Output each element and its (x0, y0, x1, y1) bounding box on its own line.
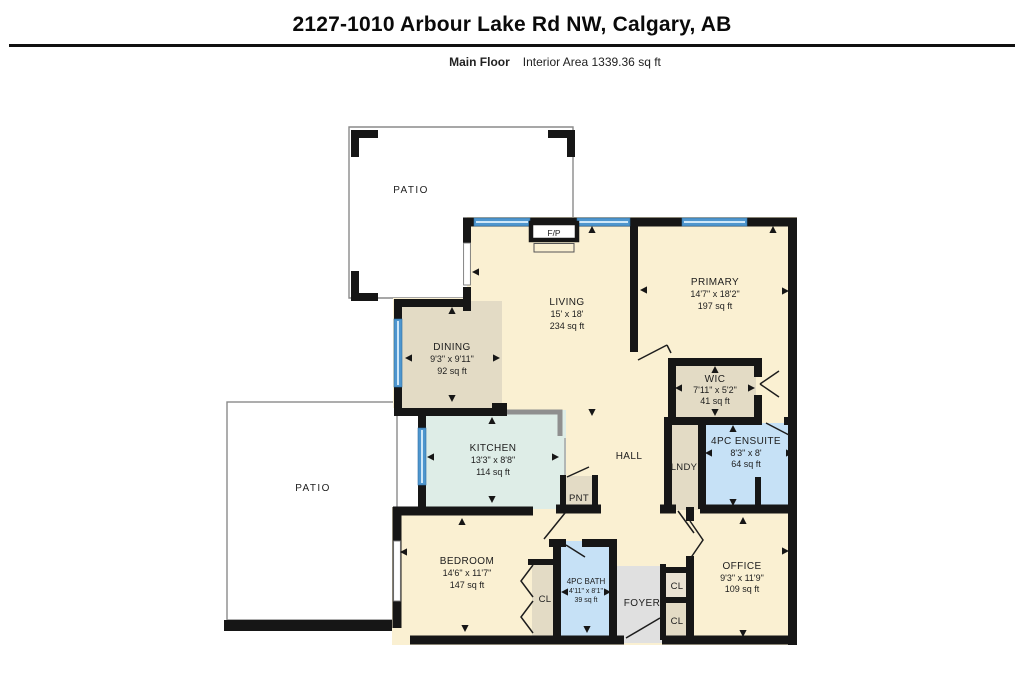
window-glass-line (684, 221, 745, 223)
dining-dims: 9'3" x 9'11" (430, 354, 474, 364)
ensuite-label: 4PC ENSUITE (711, 436, 781, 447)
foyer-label: FOYER (624, 598, 660, 609)
living-dims: 15' x 18' (551, 309, 584, 319)
patio-top-label: PATIO (393, 185, 429, 196)
pantry-label: PNT (569, 493, 589, 504)
interior-area-label: Interior Area 1339.36 sq ft (523, 55, 661, 69)
kitchen-dims: 13'3" x 8'8" (471, 455, 515, 465)
fireplace-label: F/P (547, 228, 561, 238)
bedroom-label: BEDROOM (440, 556, 494, 567)
floor-plan-page: 2127-1010 Arbour Lake Rd NW, Calgary, AB… (0, 0, 1024, 682)
plan-header: 2127-1010 Arbour Lake Rd NW, Calgary, AB… (0, 0, 1024, 69)
living-area: 234 sq ft (550, 321, 585, 331)
bath-label: 4PC BATH (567, 577, 606, 586)
closet-lower-label: CL (671, 616, 684, 627)
wic-area: 41 sq ft (700, 396, 730, 406)
dining-area: 92 sq ft (437, 366, 467, 376)
office-area: 109 sq ft (725, 584, 760, 594)
window-glass-line (476, 221, 528, 223)
window-glass-line (421, 430, 423, 483)
closet-bedroom-label: CL (539, 594, 552, 605)
window-glass-line (579, 221, 628, 223)
title-divider (9, 44, 1015, 47)
wall-nub (492, 403, 507, 414)
window-bedroom (394, 541, 401, 601)
dining-label: DINING (433, 342, 470, 353)
page-title: 2127-1010 Arbour Lake Rd NW, Calgary, AB (0, 0, 1024, 37)
ensuite-area: 64 sq ft (731, 459, 761, 469)
patio-bottom-wall (224, 620, 398, 631)
wic-dims: 7'11" x 5'2" (693, 385, 737, 395)
patio-wall-stub (351, 293, 378, 301)
patio-left-area (227, 402, 397, 620)
primary-label: PRIMARY (691, 277, 739, 288)
closet-upper-label: CL (671, 581, 684, 592)
patio-glass-door (464, 243, 471, 285)
patio-left-label: PATIO (295, 483, 331, 494)
primary-area: 197 sq ft (698, 301, 733, 311)
window-glass-line (397, 321, 399, 385)
bedroom-area: 147 sq ft (450, 580, 485, 590)
bedroom-dims: 14'6" x 11'7" (443, 568, 492, 578)
office-dims: 9'3" x 11'9" (720, 573, 764, 583)
wic-label: WIC (705, 374, 726, 385)
kitchen-label: KITCHEN (470, 443, 517, 454)
kitchen-area: 114 sq ft (476, 467, 510, 477)
bath-dims: 4'11" x 8'1" (569, 588, 603, 595)
floor-plan-drawing: PATIO PATIO F/P LIVING 15' x 18' 234 sq … (0, 0, 1024, 682)
floor-label: Main Floor (449, 55, 510, 69)
bath-area: 39 sq ft (575, 597, 598, 604)
laundry-label: LNDY (671, 462, 698, 473)
primary-dims: 14'7" x 18'2" (690, 289, 739, 299)
office-label: OFFICE (722, 561, 761, 572)
floor-subtitle: Main Floor Interior Area 1339.36 sq ft (43, 55, 1024, 69)
hall-label: HALL (616, 451, 643, 462)
ensuite-dims: 8'3" x 8' (730, 448, 761, 458)
living-label: LIVING (549, 297, 584, 308)
